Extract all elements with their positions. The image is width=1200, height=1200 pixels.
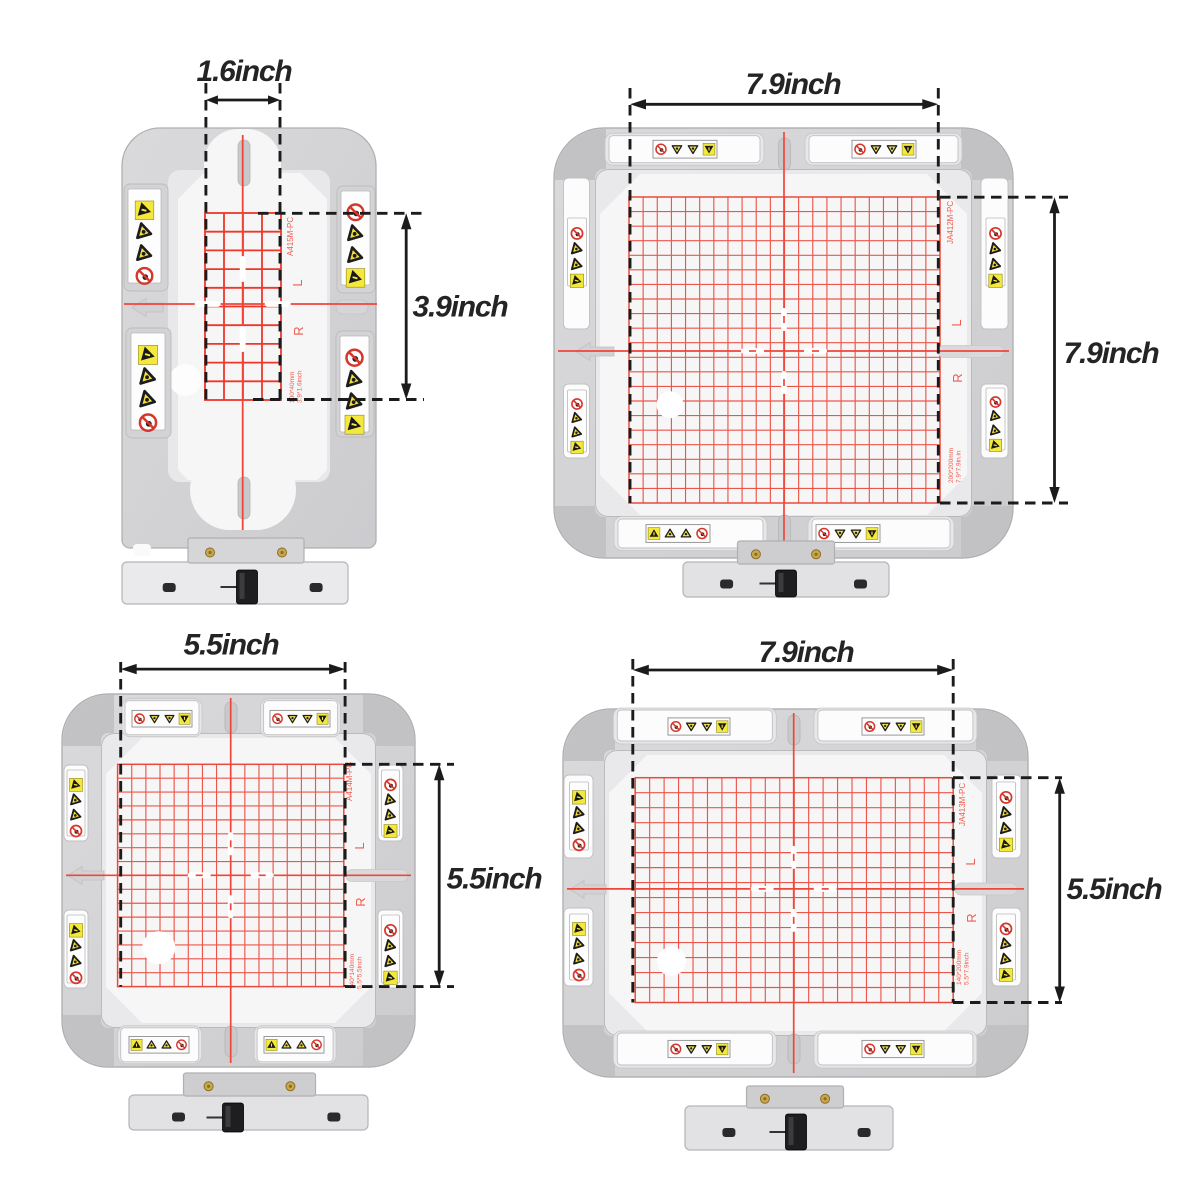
svg-text:7.9inch: 7.9inch <box>1064 337 1160 370</box>
svg-text:3.9*1.6inch: 3.9*1.6inch <box>297 370 304 403</box>
svg-text:L: L <box>290 279 305 286</box>
svg-text:5.5inch: 5.5inch <box>1067 873 1163 906</box>
svg-text:5.5*5.5inch: 5.5*5.5inch <box>357 956 364 989</box>
svg-text:5.5inch: 5.5inch <box>184 629 280 662</box>
svg-text:3.9inch: 3.9inch <box>413 291 509 324</box>
svg-text:5.5inch: 5.5inch <box>447 863 543 896</box>
svg-text:140*200mm: 140*200mm <box>956 950 963 985</box>
svg-text:200*200mm: 200*200mm <box>948 448 955 483</box>
svg-text:R: R <box>964 913 979 922</box>
svg-text:7.9*7.9in.in: 7.9*7.9in.in <box>956 450 963 483</box>
svg-text:R: R <box>353 897 368 906</box>
svg-text:L: L <box>949 319 964 326</box>
svg-text:L: L <box>963 858 978 865</box>
svg-text:7.9inch: 7.9inch <box>746 68 842 101</box>
svg-text:R: R <box>950 373 965 382</box>
svg-text:L: L <box>352 842 367 849</box>
svg-text:A415M-PC: A415M-PC <box>286 217 295 256</box>
svg-text:5.5*7.9inch: 5.5*7.9inch <box>964 952 971 985</box>
svg-text:JA412M-PC: JA412M-PC <box>946 201 955 244</box>
svg-text:1.6inch: 1.6inch <box>197 55 293 88</box>
svg-text:140*140mm: 140*140mm <box>349 954 356 989</box>
svg-text:JA413M-PC: JA413M-PC <box>958 783 967 826</box>
svg-text:R: R <box>291 326 306 335</box>
svg-text:7.9inch: 7.9inch <box>759 636 855 669</box>
